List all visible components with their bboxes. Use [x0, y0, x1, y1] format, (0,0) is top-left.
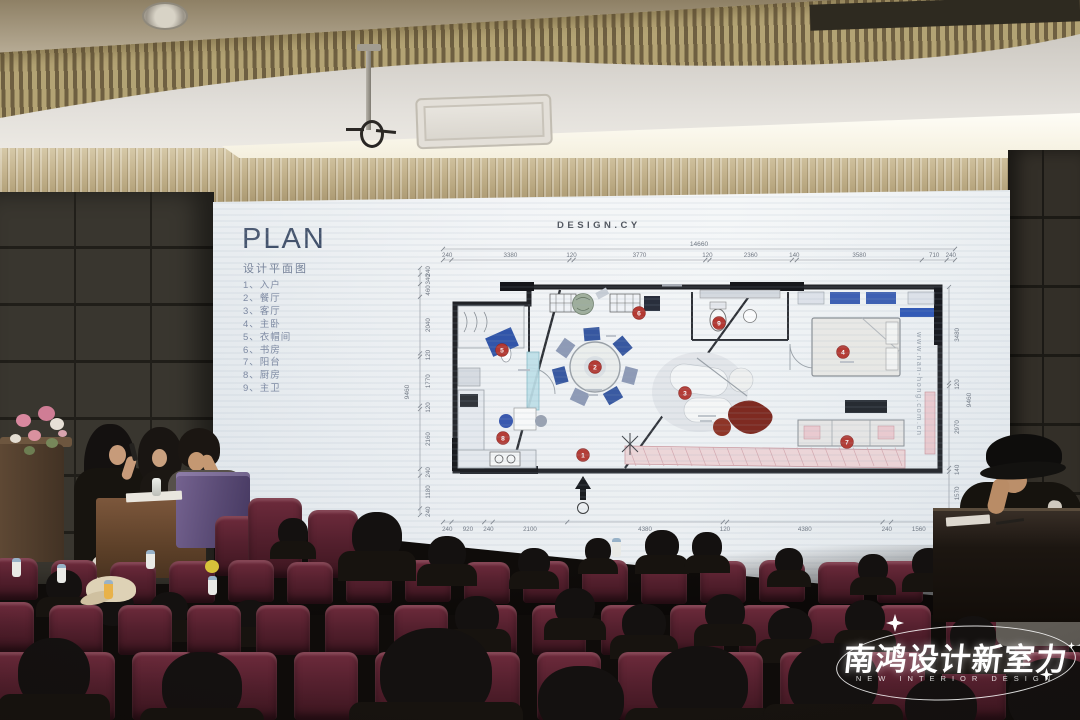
audience-shoulders: [767, 570, 811, 587]
audience-shoulders: [578, 558, 619, 574]
audience-seat: [118, 605, 172, 655]
water-bottle: [12, 558, 21, 577]
audience-shoulders: [417, 564, 476, 586]
audience-seat: [187, 605, 241, 655]
lecture-hall-photo: PLAN 设计平面图 1、入户2、餐厅3、客厅4、主卧5、衣帽间6、书房7、阳台…: [0, 0, 1080, 720]
air-vent: [415, 94, 553, 150]
water-bottle: [146, 550, 155, 569]
flower: [50, 418, 64, 430]
flower: [46, 438, 58, 448]
water-bottle: [208, 576, 217, 595]
audience-shoulders: [684, 555, 731, 573]
audience-shoulders: [694, 624, 756, 647]
projector-mount: [352, 118, 386, 144]
audience-shoulders: [338, 551, 416, 581]
audience-shoulders: [509, 571, 559, 589]
audience-seat: [228, 560, 274, 602]
water-bottle: [104, 580, 113, 599]
flower: [28, 430, 41, 441]
water-bottle: [57, 564, 66, 583]
podium: [0, 444, 64, 562]
flower: [24, 446, 35, 455]
recessed-downlight: [142, 2, 188, 30]
audience-shoulders: [544, 618, 606, 641]
audience-shoulders: [349, 702, 524, 720]
water-bottle: [612, 538, 621, 557]
flower: [58, 430, 67, 437]
yellow-object: [205, 560, 219, 573]
audience-shoulders: [0, 694, 110, 720]
audience-seat: [287, 562, 333, 604]
flower: [10, 434, 21, 443]
audience-seat: [0, 602, 34, 652]
audience-shoulders: [625, 708, 775, 720]
audience-seat: [256, 605, 310, 655]
audience-shoulders: [270, 541, 317, 559]
sparkle-icon: [886, 614, 904, 632]
projector-ceiling-plate: [357, 44, 381, 51]
audience-head: [538, 666, 624, 720]
flower: [16, 414, 31, 427]
audience-seat: [325, 605, 379, 655]
brand-name-en: NEW INTERIOR DESIGN: [828, 674, 1080, 683]
brand-watermark: 南鸿设计新室力 NEW INTERIOR DESIGN: [828, 612, 1080, 716]
desk-bottle: [152, 478, 161, 496]
audience-shoulders: [850, 577, 897, 595]
audience-shoulders: [140, 708, 265, 720]
brand-name-cn: 南鸿设计新室力: [826, 634, 1080, 679]
audience-shoulders: [635, 555, 688, 574]
audience-seat: [294, 652, 358, 720]
